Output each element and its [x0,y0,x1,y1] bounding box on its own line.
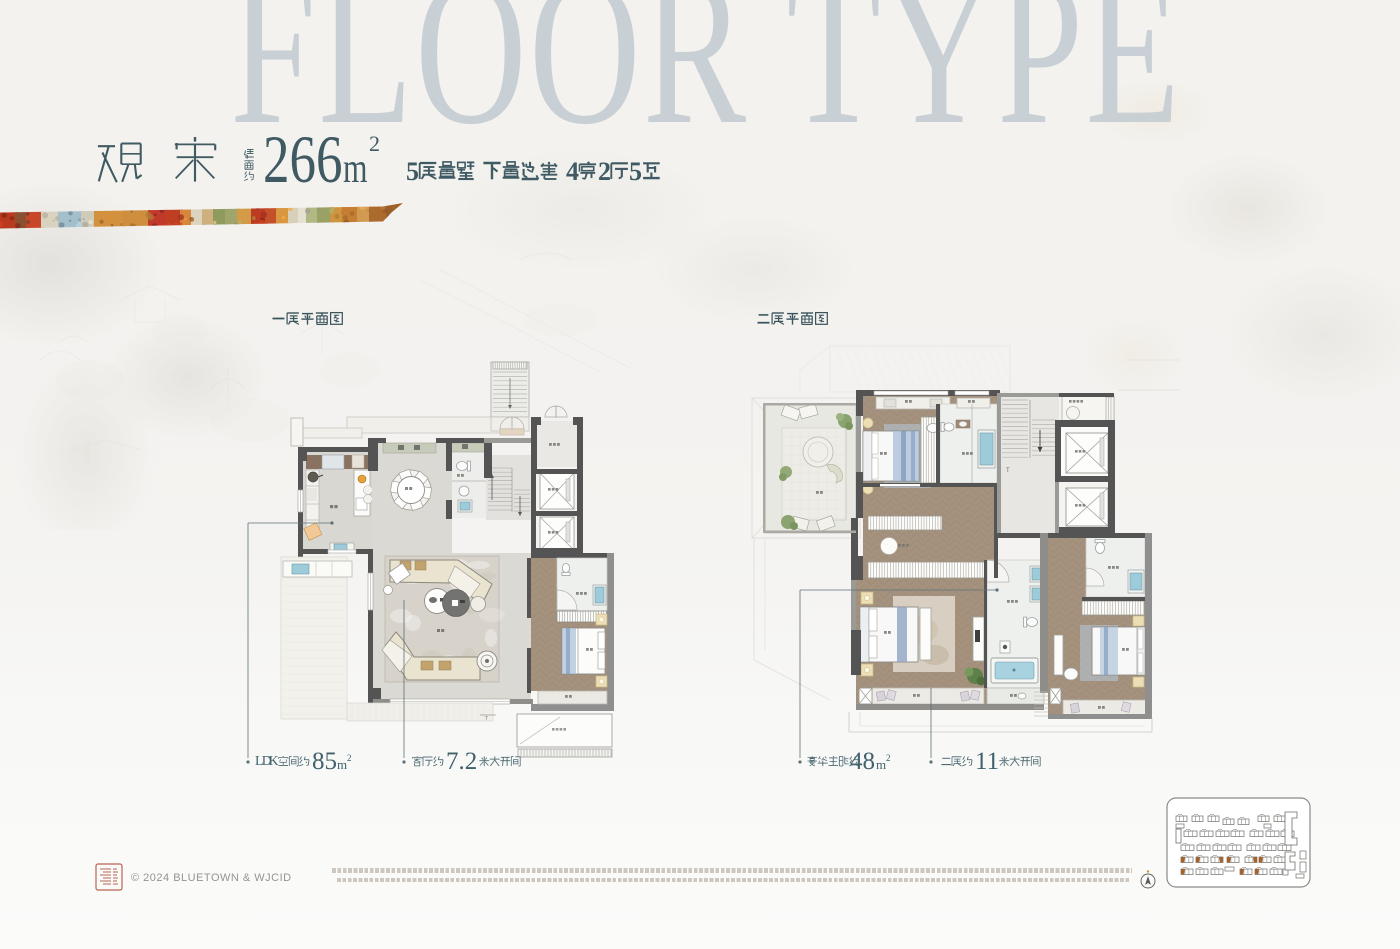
svg-text:T: T [1006,468,1010,474]
svg-text:7.2: 7.2 [446,748,477,775]
svg-text:K: K [269,753,279,768]
svg-text:11: 11 [975,748,999,775]
svg-text:© 2024 BLUETOWN & WJCID: © 2024 BLUETOWN & WJCID [131,872,292,884]
svg-text:2: 2 [347,753,352,763]
svg-text:m: m [337,757,347,772]
svg-text:85: 85 [312,748,337,775]
svg-text:m: m [876,757,886,772]
svg-text:2: 2 [886,753,891,763]
svg-text:T: T [485,716,488,722]
svg-text:48: 48 [850,748,875,775]
